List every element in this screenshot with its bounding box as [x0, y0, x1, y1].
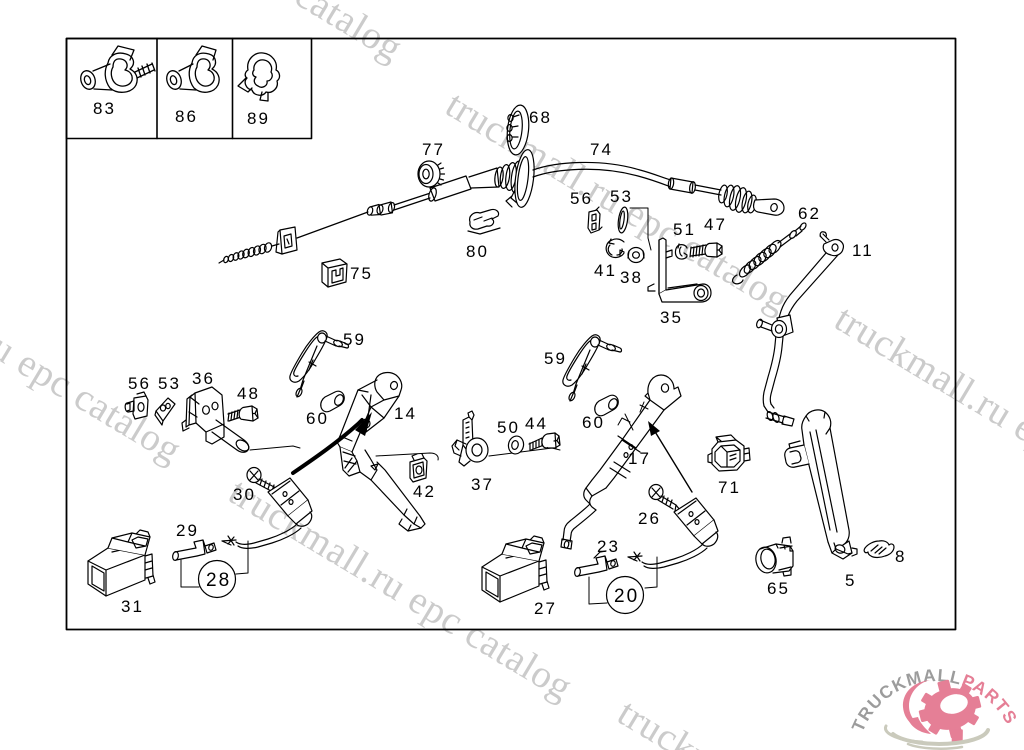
svg-text:86: 86 — [175, 107, 198, 126]
svg-text:51: 51 — [673, 220, 696, 239]
svg-text:20: 20 — [614, 586, 639, 607]
svg-text:42: 42 — [413, 482, 436, 501]
svg-text:31: 31 — [121, 597, 144, 616]
svg-text:5: 5 — [845, 571, 856, 590]
svg-text:27: 27 — [534, 599, 557, 618]
svg-text:53: 53 — [158, 374, 181, 393]
svg-text:35: 35 — [660, 308, 683, 327]
svg-text:14: 14 — [394, 404, 417, 423]
svg-text:23: 23 — [597, 537, 620, 556]
svg-text:11: 11 — [852, 241, 874, 260]
svg-text:68: 68 — [529, 108, 552, 127]
svg-text:60: 60 — [306, 409, 329, 428]
svg-text:47: 47 — [704, 215, 727, 234]
svg-text:60: 60 — [582, 413, 605, 432]
svg-text:44: 44 — [525, 414, 548, 433]
svg-text:75: 75 — [350, 264, 373, 283]
svg-text:29: 29 — [176, 521, 199, 540]
svg-text:65: 65 — [767, 579, 790, 598]
svg-text:71: 71 — [718, 478, 741, 497]
svg-text:8: 8 — [895, 547, 906, 566]
svg-text:74: 74 — [590, 140, 613, 159]
svg-text:41: 41 — [594, 261, 617, 280]
svg-text:77: 77 — [422, 140, 445, 159]
svg-text:36: 36 — [192, 369, 215, 388]
svg-text:26: 26 — [638, 509, 661, 528]
svg-text:56: 56 — [570, 189, 593, 208]
svg-text:38: 38 — [620, 268, 643, 287]
svg-text:28: 28 — [206, 570, 231, 591]
svg-text:50: 50 — [497, 418, 520, 437]
svg-text:59: 59 — [544, 349, 567, 368]
svg-text:30: 30 — [233, 485, 256, 504]
svg-text:83: 83 — [93, 99, 116, 118]
svg-text:53: 53 — [610, 187, 633, 206]
svg-text:17: 17 — [628, 449, 651, 468]
svg-text:56: 56 — [128, 374, 151, 393]
svg-text:59: 59 — [343, 330, 366, 349]
svg-text:80: 80 — [466, 242, 489, 261]
svg-text:48: 48 — [237, 384, 260, 403]
svg-text:89: 89 — [247, 109, 270, 128]
svg-text:37: 37 — [471, 475, 494, 494]
svg-text:62: 62 — [798, 204, 821, 223]
